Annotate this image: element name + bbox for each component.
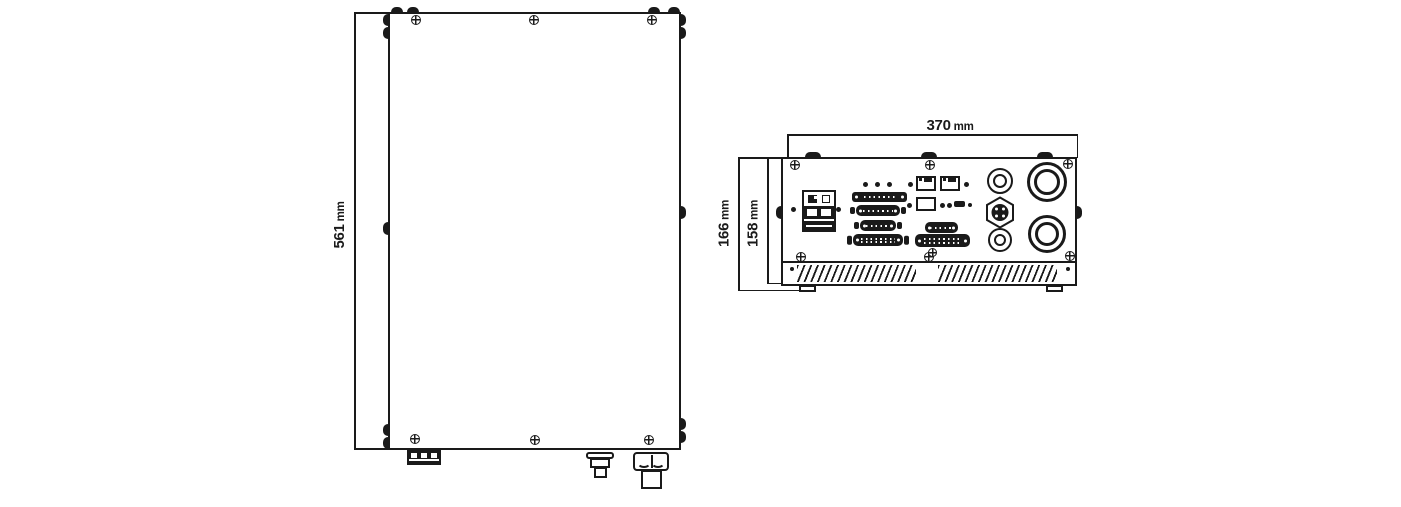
screw-icon bbox=[790, 160, 800, 170]
breaker-flag bbox=[814, 196, 817, 199]
connector-pins bbox=[866, 225, 891, 227]
circuit-breaker bbox=[802, 190, 836, 232]
dsub-connector-2 bbox=[860, 220, 896, 231]
mount-dot bbox=[907, 203, 912, 208]
breaker-mount-dot bbox=[836, 207, 841, 212]
dim-line-370 bbox=[787, 134, 1078, 136]
dsub-connector-1 bbox=[856, 205, 900, 216]
terminal-strip-connector bbox=[852, 192, 907, 202]
rj45-tab bbox=[924, 178, 932, 182]
connector-pins bbox=[863, 210, 893, 212]
round-connector-inner bbox=[994, 234, 1006, 246]
mount-dot bbox=[908, 182, 913, 187]
dim-tick-158-bottom bbox=[767, 283, 781, 285]
edge-bump bbox=[921, 152, 937, 157]
cable-gland-inner bbox=[1034, 169, 1060, 195]
screw-icon bbox=[796, 252, 806, 262]
dim-tick-370-right bbox=[1077, 134, 1079, 158]
rj45-tab bbox=[948, 178, 956, 182]
breaker-rocker bbox=[821, 209, 831, 216]
rear-panel-view: 370 mm 166 mm 158 mm bbox=[0, 0, 1401, 507]
screw-icon bbox=[928, 248, 937, 257]
cable-gland-inner bbox=[1035, 222, 1059, 246]
connector-pins bbox=[864, 196, 895, 198]
foot-left bbox=[799, 285, 816, 292]
breaker-window bbox=[822, 195, 830, 203]
rj45-tab bbox=[943, 178, 946, 181]
db25-connector bbox=[915, 234, 970, 247]
status-led-icon bbox=[887, 182, 892, 187]
edge-bump bbox=[776, 206, 781, 219]
edge-bump bbox=[805, 152, 821, 157]
dim-label-370: 370 mm bbox=[900, 117, 1000, 135]
screw-icon bbox=[1063, 159, 1073, 169]
dim-158-value: 158 bbox=[745, 223, 762, 247]
breaker-rocker-band bbox=[804, 206, 834, 219]
status-led-icon bbox=[875, 182, 880, 187]
dim-370-unit: mm bbox=[954, 121, 974, 133]
ethernet-port-icon bbox=[940, 176, 960, 191]
dim-370-value: 370 bbox=[927, 117, 951, 134]
breaker-rocker bbox=[807, 209, 817, 216]
dim-label-166: 166 mm bbox=[716, 184, 733, 264]
round-connector-inner bbox=[993, 174, 1007, 188]
dim-label-158: 158 mm bbox=[745, 184, 762, 264]
vent-end-dot bbox=[1066, 267, 1070, 271]
usb-port-icon bbox=[916, 197, 936, 211]
breaker-base bbox=[804, 221, 834, 230]
dsub-connector-3 bbox=[853, 234, 903, 246]
mount-dot bbox=[964, 182, 969, 187]
connector-pins bbox=[861, 238, 895, 240]
drawing-canvas: 561 mm bbox=[0, 0, 1401, 507]
connector-pins bbox=[861, 241, 895, 243]
ethernet-port-icon bbox=[916, 176, 936, 191]
dim-166-value: 166 bbox=[716, 223, 733, 247]
db9-connector bbox=[925, 222, 958, 233]
connector-pins bbox=[924, 238, 961, 240]
dim-tick-158-top bbox=[767, 157, 781, 159]
mount-dot bbox=[968, 203, 972, 207]
foot-right bbox=[1046, 285, 1063, 292]
screw-icon bbox=[925, 160, 935, 170]
dim-tick-166-bottom bbox=[738, 290, 800, 292]
vent-slots-right bbox=[938, 265, 1057, 282]
dim-158-unit: mm bbox=[749, 200, 761, 220]
small-port bbox=[954, 201, 965, 207]
vent-end-dot bbox=[790, 267, 794, 271]
edge-bump bbox=[1077, 206, 1082, 219]
mount-dot bbox=[947, 203, 952, 208]
dim-tick-370-left bbox=[787, 134, 789, 158]
dim-line-158 bbox=[767, 157, 769, 284]
edge-bump bbox=[1037, 152, 1053, 157]
connector-pins bbox=[930, 227, 952, 229]
vent-slots-left bbox=[797, 265, 916, 282]
breaker-base-line bbox=[806, 225, 832, 227]
mount-dot bbox=[940, 203, 945, 208]
status-led-icon bbox=[863, 182, 868, 187]
screw-icon bbox=[1065, 251, 1075, 261]
rj45-tab bbox=[919, 178, 922, 181]
dim-166-unit: mm bbox=[720, 200, 732, 220]
connector-pins bbox=[924, 242, 961, 244]
dim-line-166 bbox=[738, 157, 740, 291]
breaker-mount-dot bbox=[791, 207, 796, 212]
m12-connector-icon bbox=[983, 196, 1017, 229]
